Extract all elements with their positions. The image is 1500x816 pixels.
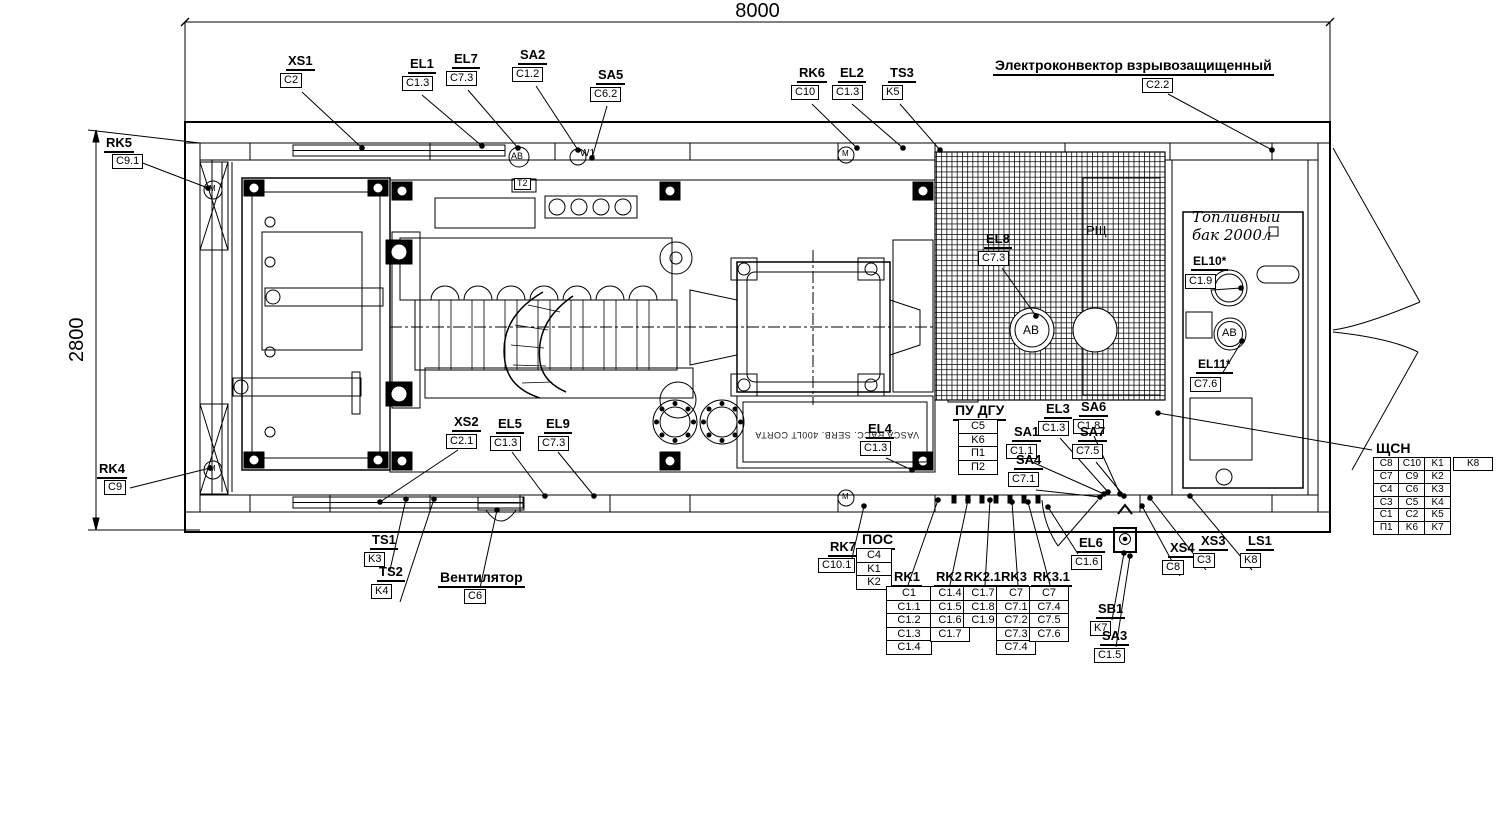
callout-EL7-value: C7.3 — [446, 71, 477, 86]
callout-RK4-value: C9 — [104, 480, 126, 495]
label-motor-top-mid: М — [842, 150, 849, 158]
callout-EL11*-value: C7.6 — [1190, 377, 1221, 392]
callout-EL11*: EL11* — [1196, 358, 1233, 374]
callout-EL6: EL6 — [1077, 536, 1105, 553]
stack-RK2: RK2 — [934, 570, 964, 587]
stack-ПОС-values: C4K1K2 — [856, 550, 892, 590]
callout-EL3-value: C1.3 — [1038, 421, 1069, 436]
callout-SA2: SA2 — [518, 48, 547, 65]
callout-Электроконвектор взрывозащищенный-value: C2.2 — [1142, 78, 1173, 93]
callout-RK4: RK4 — [97, 462, 127, 479]
callout-XS4-value: C8 — [1162, 560, 1184, 575]
shchsn-cell: K7 — [1424, 521, 1451, 535]
shchsn-row: П1K6K7 — [1374, 521, 1493, 535]
label-ab-breaker-mesh: АВ — [1023, 324, 1039, 336]
callout-SA4: SA4 — [1014, 453, 1043, 470]
callout-SA3: SA3 — [1100, 629, 1129, 646]
stack-RK2.1: RK2.1 — [962, 570, 1003, 587]
callout-SA1: SA1 — [1012, 425, 1041, 442]
stack-RK3.1-value: C7.6 — [1029, 627, 1069, 642]
label-fuel-tank-line1: Топливный — [1192, 210, 1280, 225]
callout-EL6-value: C1.6 — [1071, 555, 1102, 570]
shchsn-cell: П1 — [1373, 521, 1400, 535]
callout-TS3-value: K5 — [882, 85, 903, 100]
dimension-width: 8000 — [185, 0, 1330, 23]
callout-TS1: TS1 — [370, 533, 398, 550]
label-motor-bottom-mid: М — [842, 493, 849, 501]
callout-Вентилятор: Вентилятор — [438, 570, 525, 588]
callout-EL5: EL5 — [496, 417, 524, 434]
callout-XS3-value: C3 — [1193, 553, 1215, 568]
callout-RK5-value: C9.1 — [112, 154, 143, 169]
callout-XS2-value: C2.1 — [446, 434, 477, 449]
callout-SA5: SA5 — [596, 68, 625, 85]
callout-EL8: EL8 — [984, 232, 1012, 249]
callout-TS2: TS2 — [377, 565, 405, 582]
callout-RK7: RK7 — [828, 540, 858, 557]
label-ab-breaker-tank: АВ — [1222, 328, 1237, 339]
callout-EL8-value: C7.3 — [978, 251, 1009, 266]
callout-EL9: EL9 — [544, 417, 572, 434]
callout-EL2: EL2 — [838, 66, 866, 83]
callout-SA3-value: C1.5 — [1094, 648, 1125, 663]
callout-TS3: TS3 — [888, 66, 916, 83]
stack-RK3.1: RK3.1 — [1031, 570, 1072, 587]
callout-LS1: LS1 — [1246, 534, 1274, 551]
shchsn-cell: K8 — [1453, 457, 1493, 471]
label-motor-top-left: М — [209, 185, 216, 193]
label-room-rsh: РЩ — [1086, 224, 1107, 237]
dimension-height: 2800 — [66, 318, 89, 363]
stack-RK3: RK3 — [999, 570, 1029, 587]
callout-EL5-value: C1.3 — [490, 436, 521, 451]
callout-SA4-value: C7.1 — [1008, 472, 1039, 487]
callout-RK7-value: C10.1 — [818, 558, 855, 573]
callout-EL3: EL3 — [1044, 402, 1072, 419]
callout-RK6-value: C10 — [791, 85, 819, 100]
callout-LS1-value: K8 — [1240, 553, 1261, 568]
callout-SA7: SA7 — [1078, 425, 1107, 442]
callout-RK6: RK6 — [797, 66, 827, 83]
label-vasca-text: VASCA RACC. SERB. 400LT CORTA — [742, 430, 932, 439]
stack-RK1: RK1 — [892, 570, 922, 587]
callout-EL10*: EL10* — [1191, 255, 1228, 271]
callout-Вентилятор-value: C6 — [464, 589, 486, 604]
callout-EL7: EL7 — [452, 52, 480, 69]
label-t2-label: Т2 — [514, 178, 531, 190]
callout-EL1: EL1 — [408, 57, 436, 74]
blueprint-canvas: 8000 2800 XS1C2EL1C1.3EL7C7.3SA2C1.2SA5C… — [0, 0, 1500, 816]
stack-RK1-value: C1.4 — [886, 640, 932, 655]
stack-ПУ ДГУ: ПУ ДГУ — [953, 403, 1006, 421]
callout-SA5-value: C6.2 — [590, 87, 621, 102]
stack-RK3.1-values: C7C7.4C7.5C7.6 — [1029, 588, 1069, 642]
callout-SA6: SA6 — [1079, 400, 1108, 417]
stack-ПУ ДГУ-values: C5K6П1П2 — [958, 421, 998, 475]
label-w1-label: W1 — [580, 149, 595, 159]
callout-XS1: XS1 — [286, 54, 315, 71]
stack-RK3-value: C7.4 — [996, 640, 1036, 655]
callout-EL9-value: C7.3 — [538, 436, 569, 451]
stack-RK1-values: C1C1.1C1.2C1.3C1.4 — [886, 588, 932, 655]
callout-RK5: RK5 — [104, 136, 134, 153]
stack-ПОС: ПОС — [860, 532, 895, 550]
callout-XS2: XS2 — [452, 415, 481, 432]
callout-Электроконвектор взрывозащищенный: Электроконвектор взрывозащищенный — [993, 58, 1274, 76]
annotation-layer: 8000 2800 XS1C2EL1C1.3EL7C7.3SA2C1.2SA5C… — [0, 0, 1500, 816]
callout-SA2-value: C1.2 — [512, 67, 543, 82]
callout-XS1-value: C2 — [280, 73, 302, 88]
stack-RK2-value: C1.7 — [930, 627, 970, 642]
label-motor-bottom-left: М — [209, 465, 216, 473]
callout-XS3: XS3 — [1199, 534, 1228, 551]
callout-EL2-value: C1.3 — [832, 85, 863, 100]
callout-EL10*-value: C1.9 — [1185, 274, 1216, 289]
callout-TS2-value: K4 — [371, 584, 392, 599]
callout-EL4-value: C1.3 — [860, 441, 891, 456]
label-fuel-tank-line2: бак 2000л — [1192, 228, 1272, 243]
label-ab-breaker-top: АВ — [511, 152, 523, 161]
callout-SA7-value: C7.5 — [1072, 444, 1103, 459]
stack-ПУ ДГУ-value: П2 — [958, 460, 998, 475]
callout-SB1: SB1 — [1096, 602, 1125, 619]
shchsn-title: ЩСН — [1374, 441, 1413, 459]
shchsn-cell: K6 — [1398, 521, 1425, 535]
shchsn-panel: ЩСНC8C10K1K8C7C9K2C4C6K3C3C5K4C1C2K5П1K6… — [1374, 440, 1493, 535]
callout-EL1-value: C1.3 — [402, 76, 433, 91]
